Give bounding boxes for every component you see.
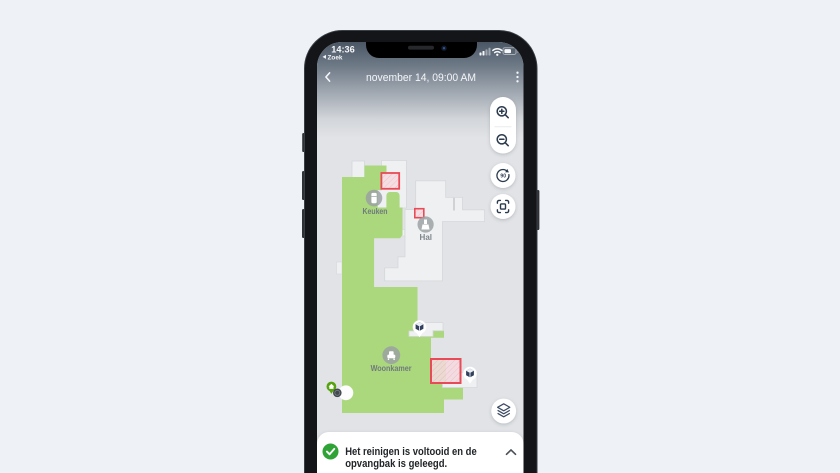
svg-text:opvangbak is geleegd.: opvangbak is geleegd. — [345, 458, 447, 470]
svg-text:Woonkamer: Woonkamer — [371, 364, 412, 373]
svg-text:november 14, 09:00 AM: november 14, 09:00 AM — [366, 72, 476, 84]
svg-text:90: 90 — [500, 174, 506, 180]
svg-text:Hal: Hal — [420, 233, 433, 242]
svg-text:Het reinigen is voltooid en de: Het reinigen is voltooid en de — [345, 446, 477, 458]
svg-text:Zoek: Zoek — [328, 55, 343, 62]
svg-text:Keuken: Keuken — [363, 207, 388, 216]
